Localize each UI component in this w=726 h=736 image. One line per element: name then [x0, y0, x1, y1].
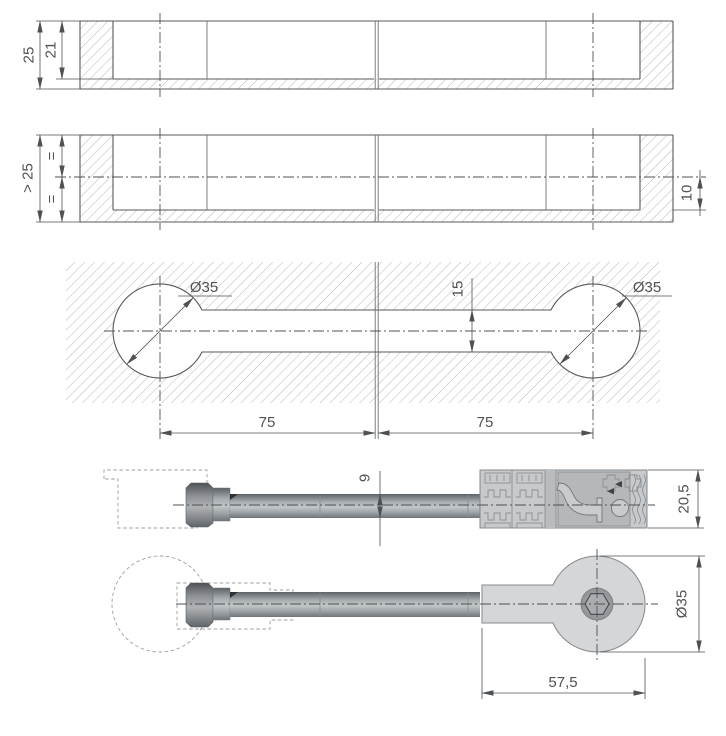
dimension-75-right: 75 — [378, 414, 593, 433]
dim-label-gt25: > 25 — [20, 163, 37, 193]
bolt-shaft — [230, 592, 480, 617]
dimension-20-5: 20,5 — [648, 470, 704, 528]
dim-label-15: 15 — [450, 281, 467, 298]
dim-label-equal-top: = — [44, 151, 61, 160]
dim-label-d35-cam: Ø35 — [674, 590, 691, 618]
panel-outline — [80, 135, 673, 222]
panel-joint-line — [375, 135, 378, 222]
dimension-75-left: 75 — [160, 414, 375, 433]
drawing-canvas: 25 21 > 25 = = — [0, 0, 726, 736]
dim-label-d35-right: Ø35 — [633, 279, 661, 296]
view-fitting-side: 9 20,5 — [104, 470, 704, 546]
cam-pivot-hole — [612, 500, 629, 517]
dim-label-d35-left: Ø35 — [190, 279, 218, 296]
view-panel-section-standard: 25 21 — [21, 13, 674, 97]
dim-label-equal-bottom: = — [44, 194, 61, 203]
view-fitting-plan: Ø35 57,5 — [112, 549, 705, 699]
dim-label-75-right: 75 — [477, 414, 494, 431]
dim-label-10: 10 — [679, 185, 696, 202]
dimension-gt25: > 25 = = — [20, 135, 81, 222]
dim-label-21: 21 — [43, 42, 60, 59]
connecting-bolt — [186, 583, 480, 627]
dim-label-9: 9 — [357, 474, 374, 482]
bolt-shaft — [230, 494, 480, 518]
hole-edge-lines — [207, 135, 546, 210]
panel-joint-line — [375, 21, 378, 89]
hatch-area — [66, 262, 660, 403]
dim-label-57-5: 57,5 — [548, 674, 577, 691]
dim-label-20-5: 20,5 — [676, 484, 693, 513]
panel-outline — [80, 21, 673, 89]
view-panel-section-thick: > 25 = = 10 — [20, 128, 707, 230]
spreading-dowel-housing — [480, 470, 647, 528]
bolt-head — [186, 583, 213, 627]
dim-label-25: 25 — [21, 47, 38, 64]
dimension-d35-left: Ø35 — [127, 279, 232, 364]
dim-label-75-left: 75 — [259, 414, 276, 431]
view-drilling-plan: Ø35 Ø35 15 75 75 — [66, 262, 672, 439]
hole-edge-lines — [207, 21, 546, 79]
bolt-collar — [213, 488, 230, 521]
technical-drawing-page: 25 21 > 25 = = — [0, 0, 726, 736]
hatch-area — [80, 135, 673, 222]
